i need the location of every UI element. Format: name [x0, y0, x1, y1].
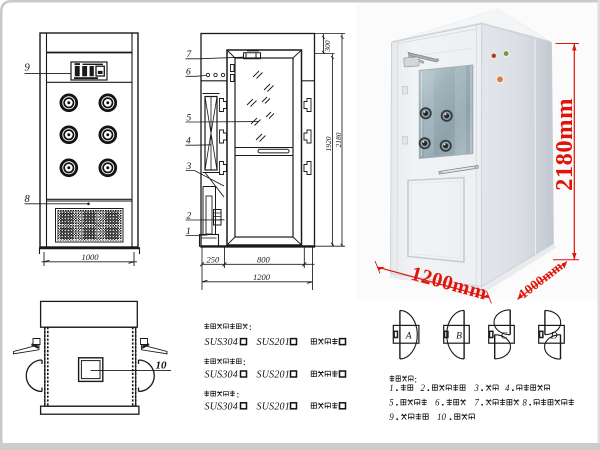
svg-text:1000: 1000 [82, 252, 100, 262]
svg-text:B: B [456, 331, 462, 341]
svg-text:9: 9 [389, 412, 394, 422]
svg-text::: : [237, 390, 240, 399]
svg-text:SUS201: SUS201 [257, 401, 290, 412]
svg-text:1920: 1920 [324, 136, 333, 151]
svg-text:C: C [501, 331, 508, 341]
svg-text:250: 250 [207, 255, 221, 265]
svg-text:2180: 2180 [334, 132, 343, 147]
svg-text:1200: 1200 [253, 272, 271, 282]
svg-text:2180mm: 2180mm [551, 98, 578, 191]
svg-text:D: D [550, 331, 558, 341]
svg-text:10: 10 [156, 360, 168, 372]
svg-text:7: 7 [474, 397, 479, 407]
svg-text:SUS201: SUS201 [257, 337, 290, 348]
svg-text:10: 10 [437, 412, 447, 422]
svg-text:A: A [405, 331, 412, 341]
svg-text:9: 9 [25, 63, 31, 74]
svg-text:SUS304: SUS304 [205, 370, 238, 381]
svg-text:SUS304: SUS304 [205, 401, 238, 412]
svg-text:300: 300 [323, 40, 332, 53]
svg-text:3: 3 [473, 383, 479, 393]
svg-text::: : [243, 358, 246, 367]
svg-text:2: 2 [421, 383, 426, 393]
svg-text:1: 1 [389, 383, 393, 393]
svg-text:SUS304: SUS304 [205, 337, 238, 348]
svg-text::: : [249, 323, 252, 332]
svg-text:4: 4 [505, 383, 510, 393]
svg-text:6: 6 [435, 397, 440, 407]
svg-text:5: 5 [389, 397, 394, 407]
svg-text:800: 800 [257, 255, 271, 265]
svg-text:SUS201: SUS201 [257, 370, 290, 381]
svg-text::: : [415, 375, 417, 385]
svg-text:8: 8 [522, 397, 527, 407]
